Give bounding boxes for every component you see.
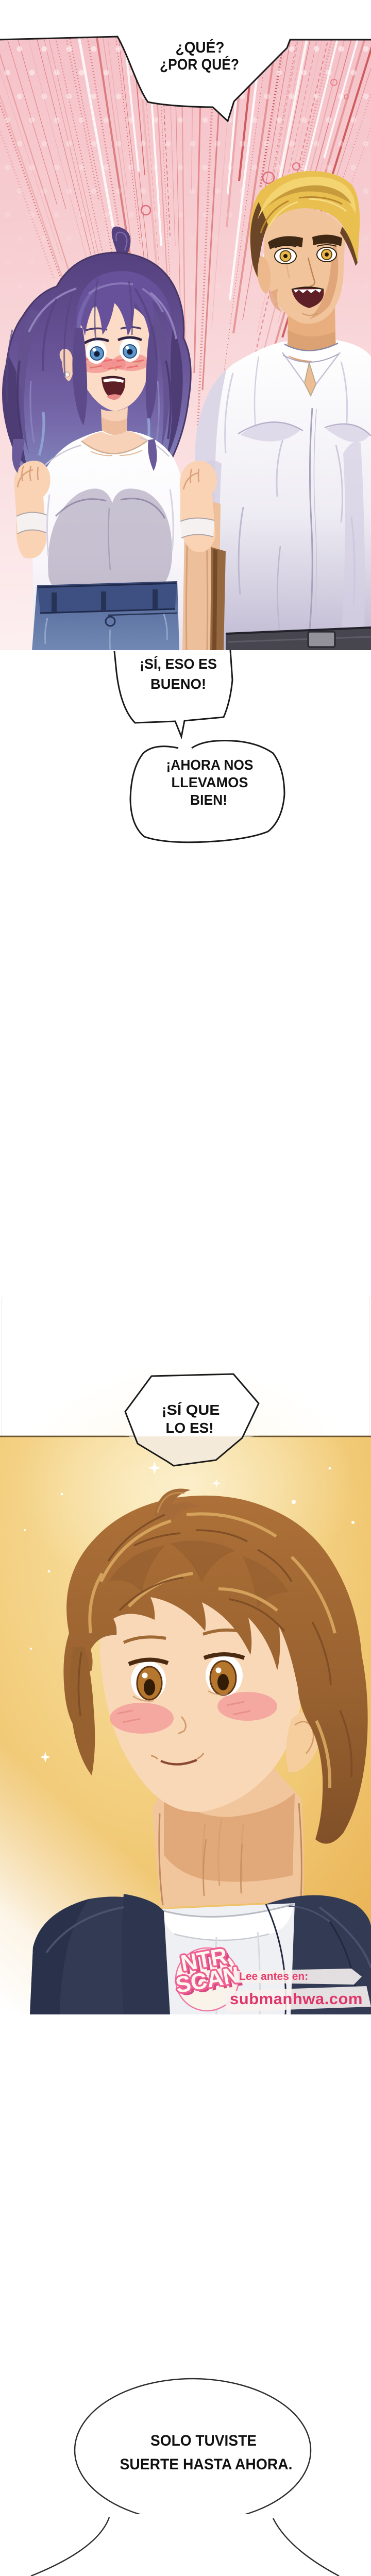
- svg-text:SUERTE HASTA AHORA.: SUERTE HASTA AHORA.: [120, 2456, 293, 2473]
- svg-text:¿POR QUÉ?: ¿POR QUÉ?: [160, 56, 239, 73]
- svg-text:LLEVAMOS: LLEVAMOS: [172, 774, 248, 790]
- svg-text:¡SÍ, ESO ES: ¡SÍ, ESO ES: [140, 656, 217, 672]
- svg-text:SOLO TUVISTE: SOLO TUVISTE: [150, 2432, 257, 2449]
- svg-text:¡SÍ QUE: ¡SÍ QUE: [162, 1402, 220, 1418]
- svg-text:¿QUÉ?: ¿QUÉ?: [176, 39, 225, 56]
- svg-text:LO ES!: LO ES!: [166, 1420, 214, 1436]
- svg-text:¡AHORA NOS: ¡AHORA NOS: [166, 757, 254, 773]
- svg-text:BIEN!: BIEN!: [190, 792, 227, 808]
- svg-text:BUENO!: BUENO!: [150, 676, 206, 692]
